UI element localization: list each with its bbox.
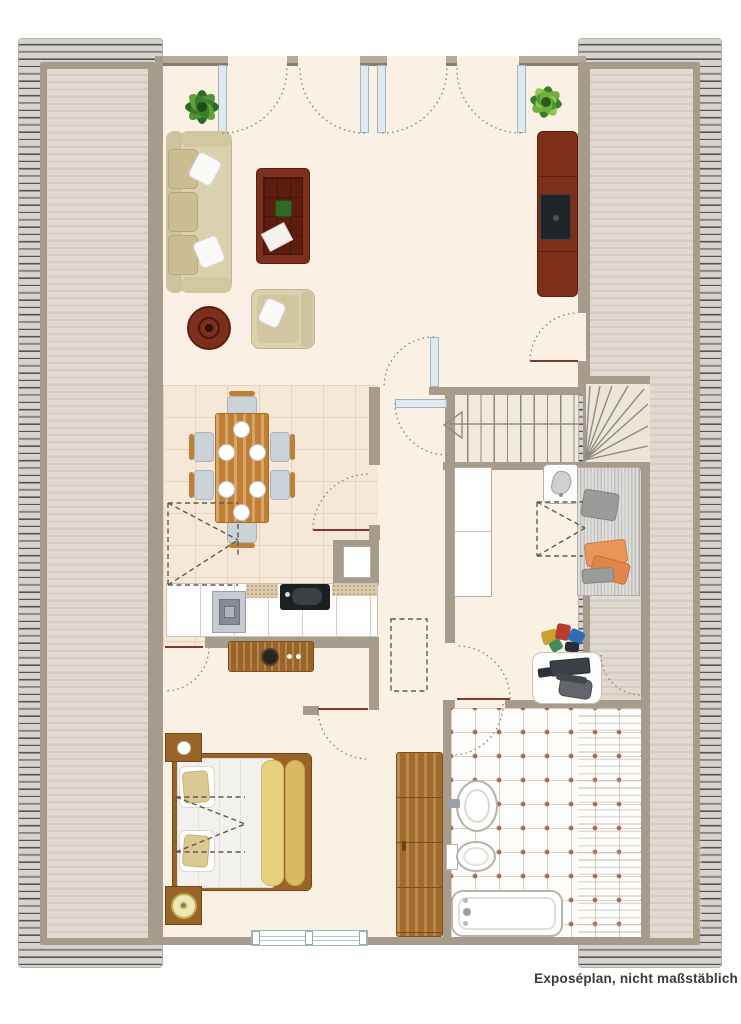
plant-icon: [185, 85, 563, 124]
plan-overlay: [0, 0, 741, 1024]
floorplan: Illustration © ImmoGrafik Exposéplan, ni…: [0, 0, 741, 1024]
door-swing-arcs: [165, 68, 641, 759]
watermark-text: Illustration © ImmoGrafik: [697, 840, 704, 929]
stair-details: [444, 386, 648, 460]
plan-caption: Exposéplan, nicht maßstäblich: [438, 971, 738, 986]
roof-dormer-outlines: [168, 502, 585, 852]
